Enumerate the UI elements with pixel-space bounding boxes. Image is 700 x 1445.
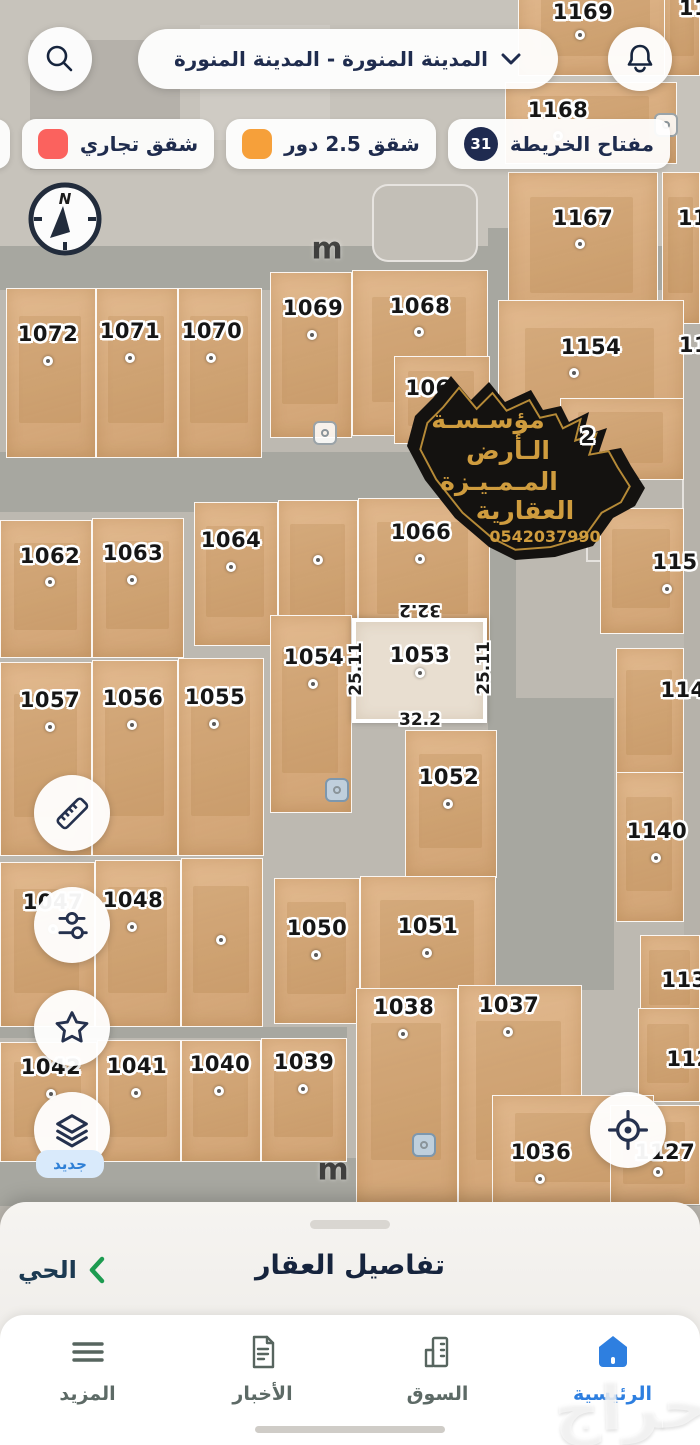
parcel-centroid-dot	[226, 562, 236, 572]
legend-color-orange	[242, 129, 272, 159]
parcel-label-1040: 1040	[190, 1052, 250, 1076]
parcel-centroid-dot	[298, 1084, 308, 1094]
building-block	[372, 184, 478, 262]
parcel-centroid-dot	[503, 1027, 513, 1037]
parcel-centroid-dot	[131, 1088, 141, 1098]
parcel-label-1056: 1056	[103, 686, 163, 710]
parcel-label-1036: 1036	[511, 1140, 571, 1164]
more-icon	[66, 1333, 110, 1371]
parcel-label-1154: 1154	[561, 335, 621, 359]
parcel-114[interactable]	[616, 648, 684, 782]
parcel-label-1053: 1053	[390, 643, 450, 667]
district-label: الحي	[18, 1256, 77, 1284]
parcel-centroid-dot	[307, 330, 317, 340]
notifications-button[interactable]	[608, 27, 672, 91]
market-icon	[418, 1333, 458, 1371]
parcel-centroid-dot	[443, 799, 453, 809]
parcel-label-11-partial: 11	[679, 333, 700, 357]
parcel-centroid-dot	[653, 1167, 663, 1177]
map-poi-icon	[313, 421, 337, 445]
parcel-1070[interactable]	[178, 288, 262, 458]
parcel-label-1037: 1037	[479, 993, 539, 1017]
dimension-left: 25.11	[346, 642, 366, 696]
parcel-label-1064: 1064	[201, 528, 261, 552]
layers-icon	[50, 1108, 94, 1152]
district-link[interactable]: الحي	[18, 1252, 218, 1288]
new-feature-badge: جديد	[36, 1150, 104, 1178]
city-selector-value: المدينة المنورة - المدينة المنورة	[174, 47, 488, 71]
parcel-centroid-dot	[535, 1174, 545, 1184]
parcel-centroid-dot	[43, 356, 53, 366]
filters-button[interactable]	[34, 887, 110, 963]
parcel-label-114-partial: 114	[660, 678, 700, 702]
parcel-label-1041: 1041	[107, 1054, 167, 1078]
parcel-centroid-dot	[575, 239, 585, 249]
parcel-centroid-dot	[206, 353, 216, 363]
parcel-label-2: 2	[580, 424, 595, 448]
parcel-1064[interactable]	[194, 502, 278, 646]
map-key-pill[interactable]: مفتاح الخريطة 31	[448, 119, 670, 169]
map-key-count-badge: 31	[464, 127, 498, 161]
legend-item-apartments-2-5[interactable]: شقق 2.5 دور	[226, 119, 436, 169]
search-icon	[41, 40, 79, 78]
sliders-icon	[50, 903, 94, 947]
parcel-label-1167: 1167	[553, 206, 613, 230]
parcel-centroid-dot	[209, 719, 219, 729]
svg-text:N: N	[59, 190, 72, 208]
company-watermark: مؤسـسـة الـأرض المـمـيـزة العقارية 05420…	[393, 366, 651, 566]
svg-text:المـمـيـزة: المـمـيـزة	[440, 467, 558, 497]
chevron-down-icon	[500, 51, 522, 67]
svg-text:مؤسـسـة: مؤسـسـة	[431, 405, 544, 435]
parcel-label-1050: 1050	[287, 916, 347, 940]
parcel-centroid-dot	[313, 555, 323, 565]
parcel-centroid-dot	[127, 575, 137, 585]
parcel-label-1038: 1038	[374, 995, 434, 1019]
parcel-label-1051: 1051	[398, 914, 458, 938]
map-poi-icon	[412, 1133, 436, 1157]
home-indicator	[255, 1426, 445, 1433]
parcel-label-1068: 1068	[390, 294, 450, 318]
parcel-label-115-partial: 115	[652, 550, 697, 574]
tab-more[interactable]: المزيد	[28, 1333, 148, 1405]
compass-icon: N	[26, 180, 104, 258]
parcel-label-1039: 1039	[274, 1050, 334, 1074]
parcel-1048[interactable]	[95, 860, 181, 1027]
locate-me-button[interactable]	[590, 1092, 666, 1168]
parcel-label-1055: 1055	[185, 685, 245, 709]
measure-button[interactable]	[34, 775, 110, 851]
dimension-top: 32.2	[399, 600, 441, 620]
parcel-label-1140: 1140	[627, 819, 687, 843]
map-key-label: مفتاح الخريطة	[510, 132, 654, 156]
parcel-1071[interactable]	[96, 288, 178, 458]
ruler-icon	[50, 791, 94, 835]
parcel-centroid-dot	[398, 1029, 408, 1039]
parcel-label-1063: 1063	[103, 541, 163, 565]
parcel-centroid-dot	[651, 853, 661, 863]
map-legend[interactable]: مفتاح الخريطة 31 شقق 2.5 دور شقق تجاري	[0, 118, 700, 170]
parcel-centroid-dot	[45, 722, 55, 732]
parcel-label-1072: 1072	[18, 322, 78, 346]
parcel-1140[interactable]	[616, 772, 684, 922]
favorites-button[interactable]	[34, 990, 110, 1066]
parcel-label-1069: 1069	[283, 296, 343, 320]
legend-item-partial[interactable]	[0, 119, 10, 169]
legend-item-commercial[interactable]: شقق تجاري	[22, 119, 214, 169]
tab-news[interactable]: الأخبار	[203, 1333, 323, 1405]
haraj-brand-watermark: حراج	[477, 1368, 700, 1445]
parcel-1072[interactable]	[6, 288, 96, 458]
legend-color-red	[38, 129, 68, 159]
parcel-centroid-dot	[414, 327, 424, 337]
chevron-left-icon	[87, 1255, 107, 1285]
road-label: m	[317, 1153, 348, 1188]
bell-icon	[620, 39, 660, 79]
dimension-right: 25.11	[474, 641, 494, 695]
parcel-centroid-dot	[127, 720, 137, 730]
parcel-1063[interactable]	[92, 518, 184, 658]
parcel-label-1070: 1070	[182, 319, 242, 343]
road-label: m	[311, 232, 342, 267]
dimension-bottom: 32.2	[399, 710, 441, 730]
parcel-centroid-dot	[127, 922, 137, 932]
parcel-label-11-partial: 11	[679, 0, 700, 20]
star-icon	[50, 1006, 94, 1050]
parcel-label-11-partial: 11	[678, 206, 700, 230]
parcel-centroid-dot	[216, 935, 226, 945]
svg-text:العقارية: العقارية	[476, 496, 574, 525]
home-icon	[593, 1333, 633, 1371]
parcel-centroid-dot	[214, 1086, 224, 1096]
sheet-drag-handle[interactable]	[310, 1220, 390, 1229]
road-widening	[516, 698, 614, 990]
parcel-1038[interactable]	[356, 988, 458, 1204]
parcel-centroid-dot	[415, 668, 425, 678]
parcel-label-113-partial: 113	[661, 968, 700, 992]
parcel-centroid-dot	[125, 353, 135, 363]
parcel-label-1071: 1071	[100, 319, 160, 343]
parcel-label-112-partial: 112	[666, 1047, 700, 1071]
city-selector[interactable]: المدينة المنورة - المدينة المنورة	[138, 29, 558, 89]
svg-text:0542037990: 0542037990	[489, 527, 600, 546]
parcel-label-1052: 1052	[419, 765, 479, 789]
parcel-label-1062: 1062	[20, 544, 80, 568]
parcel-centroid-dot	[575, 30, 585, 40]
parcel-label-1048: 1048	[103, 888, 163, 912]
app-screen: 1169111168116711115411107210711070106910…	[0, 0, 700, 1445]
parcel-centroid-dot	[422, 948, 432, 958]
parcel-centroid-dot	[308, 679, 318, 689]
parcel-centroid-dot	[311, 950, 321, 960]
parcel-centroid-dot	[45, 577, 55, 587]
parcel-centroid-dot	[662, 584, 672, 594]
parcel-label-1057: 1057	[20, 688, 80, 712]
news-icon	[243, 1333, 283, 1371]
map-poi-icon	[325, 778, 349, 802]
svg-text:الـأرض: الـأرض	[466, 434, 550, 465]
search-button[interactable]	[28, 27, 92, 91]
parcel-1062[interactable]	[0, 520, 92, 658]
target-icon	[605, 1107, 651, 1153]
parcel-label-1169: 1169	[553, 0, 613, 24]
parcel-label-1054: 1054	[284, 645, 344, 669]
